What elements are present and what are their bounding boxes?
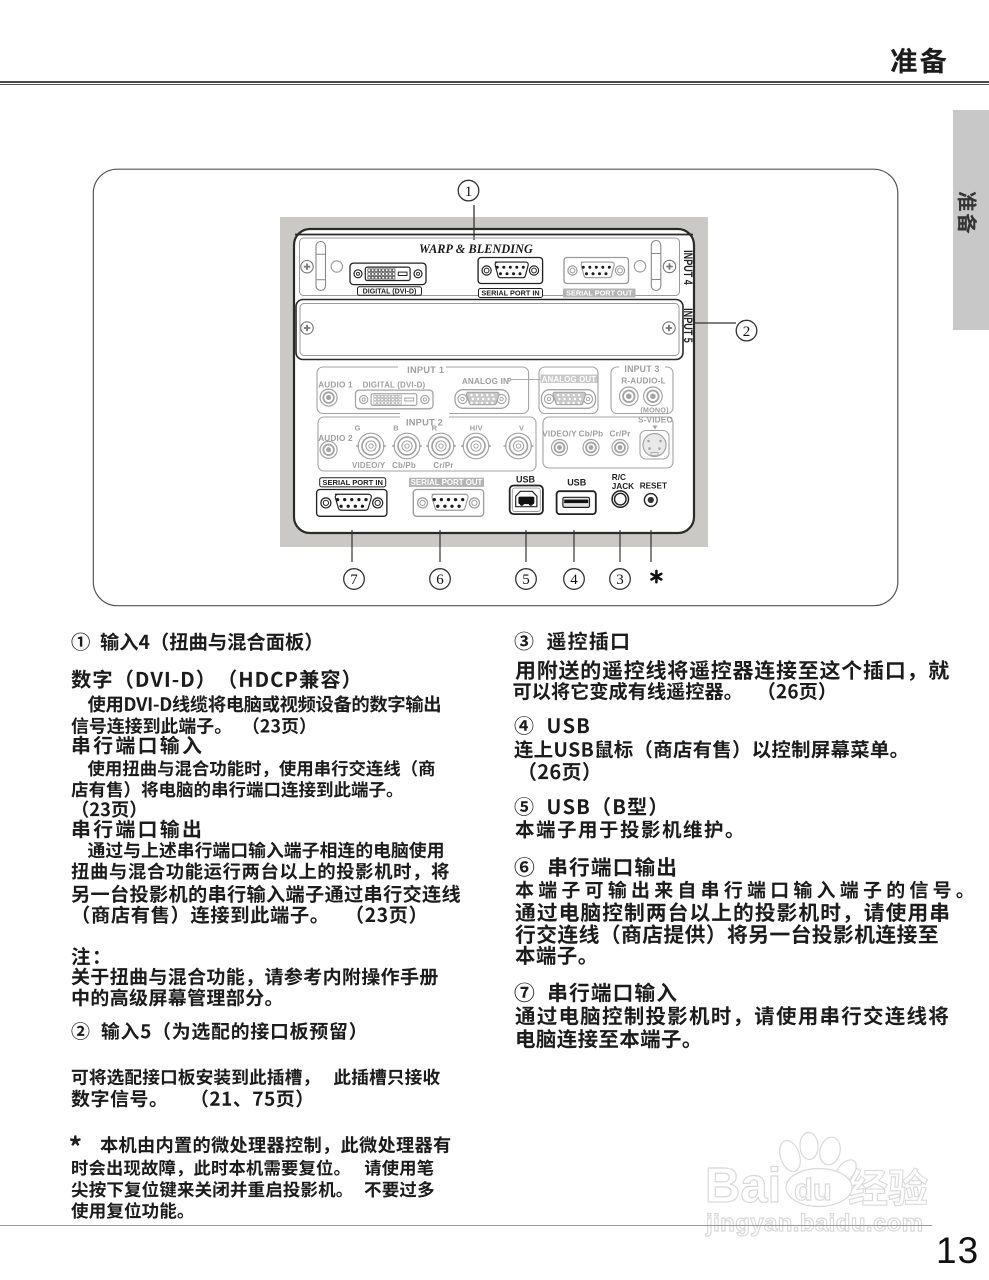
svg-text:Bai: Bai bbox=[705, 1159, 781, 1213]
svg-text:jingyan.baidu.com: jingyan.baidu.com bbox=[705, 1210, 924, 1237]
svg-text:du: du bbox=[794, 1172, 832, 1207]
